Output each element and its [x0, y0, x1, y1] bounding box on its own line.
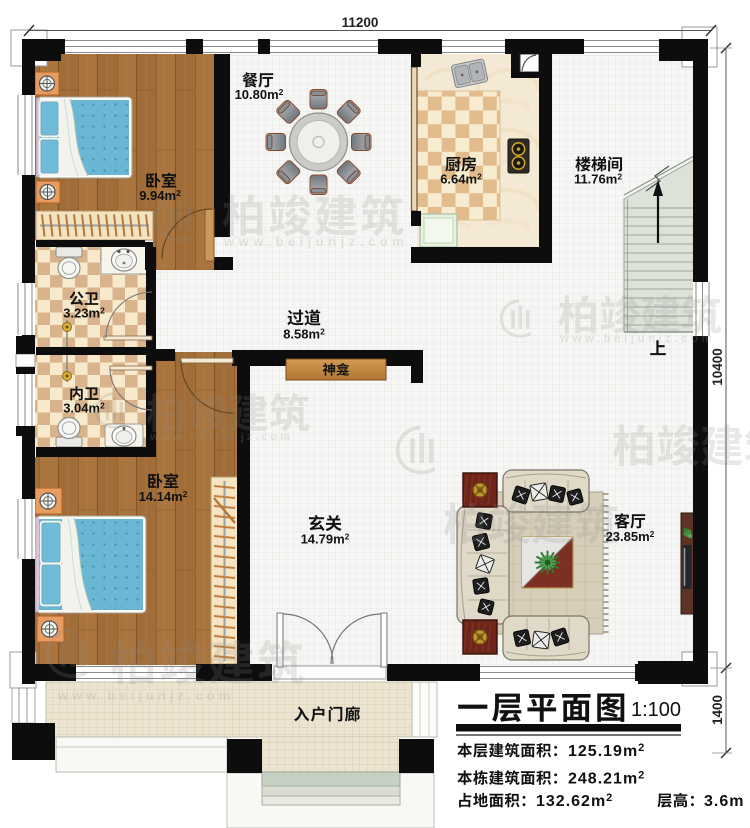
- svg-text:6.64m2: 6.64m2: [440, 172, 482, 187]
- svg-text:8.58m2: 8.58m2: [283, 327, 325, 342]
- svg-text:3.23m2: 3.23m2: [63, 306, 105, 321]
- svg-text:www.beijunjz.com: www.beijunjz.com: [149, 431, 293, 443]
- svg-text:14.79m2: 14.79m2: [301, 532, 350, 547]
- svg-text:1400: 1400: [710, 695, 725, 725]
- svg-text:9.94m2: 9.94m2: [139, 188, 181, 203]
- svg-text:14.14m2: 14.14m2: [139, 489, 188, 504]
- svg-text:10.80m2: 10.80m2: [235, 87, 284, 102]
- svg-text:23.85m2: 23.85m2: [606, 529, 655, 544]
- svg-text:10400: 10400: [710, 348, 725, 386]
- svg-text:www.beijunjz.com: www.beijunjz.com: [559, 333, 715, 345]
- svg-text:248.21m2: 248.21m2: [568, 770, 645, 788]
- svg-text:132.62m2: 132.62m2: [536, 792, 613, 810]
- svg-text:11200: 11200: [342, 15, 379, 30]
- svg-text:125.19m2: 125.19m2: [568, 742, 645, 760]
- svg-text:www.beijunjz.com: www.beijunjz.com: [223, 234, 408, 249]
- svg-text:3.04m2: 3.04m2: [63, 401, 105, 416]
- svg-text:www.beijunjz.com: www.beijunjz.com: [57, 688, 234, 703]
- svg-text:1:100: 1:100: [631, 699, 681, 721]
- svg-text:11.76m2: 11.76m2: [574, 172, 622, 187]
- svg-text:3.6m: 3.6m: [704, 793, 744, 810]
